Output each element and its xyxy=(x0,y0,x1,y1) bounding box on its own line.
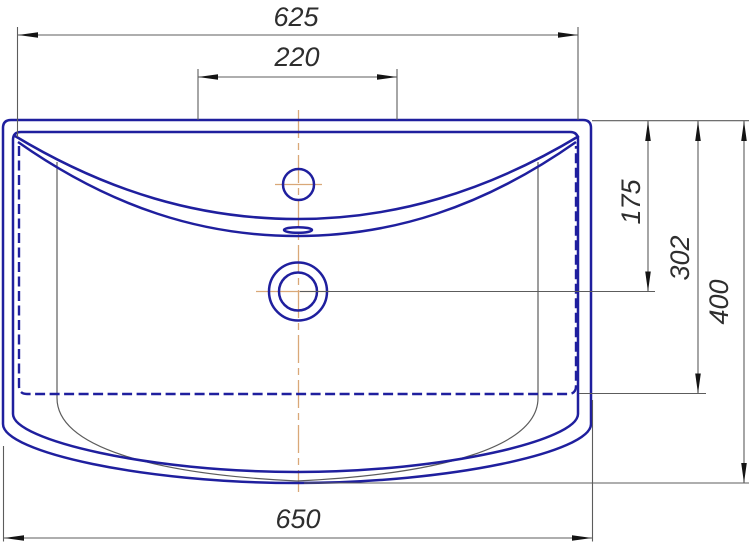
arrow-bottom-width-right xyxy=(572,535,592,541)
technical-drawing-page: 625 220 175 302 400 650 xyxy=(0,0,750,544)
extension-lines xyxy=(4,27,750,542)
inner-rim-outline xyxy=(13,132,578,472)
overflow-slot xyxy=(284,227,312,233)
dimension-arrowheads xyxy=(4,32,747,541)
arrow-right-bottom-down xyxy=(741,463,747,483)
dimension-label-right-bottom: 400 xyxy=(704,279,734,324)
arrow-right-top-up xyxy=(645,121,651,141)
arrow-top-width-right xyxy=(558,32,578,38)
arrow-right-bottom-up xyxy=(741,121,747,141)
dimension-label-top-width: 625 xyxy=(273,2,319,32)
dimension-labels: 625 220 175 302 400 650 xyxy=(273,2,734,534)
arrow-top-width-left xyxy=(18,32,38,38)
arrow-faucet-zone-left xyxy=(198,74,218,80)
basin-back-wall-upper-curve xyxy=(15,136,579,219)
washbasin-top-view-drawing: 625 220 175 302 400 650 xyxy=(0,0,750,544)
dimension-label-right-top: 175 xyxy=(616,178,646,224)
basin-back-wall-lower-curve xyxy=(18,142,576,236)
arrow-right-top-down xyxy=(645,272,651,292)
dimension-label-faucet-zone-width: 220 xyxy=(273,42,319,72)
arrow-right-middle-down xyxy=(695,374,701,394)
arrow-right-middle-up xyxy=(695,121,701,141)
centerlines xyxy=(256,110,330,492)
sink-outline xyxy=(3,120,591,483)
arrow-faucet-zone-right xyxy=(377,74,397,80)
arrow-bottom-width-left xyxy=(4,535,24,541)
dimension-label-bottom-width: 650 xyxy=(275,504,320,534)
dimension-lines xyxy=(4,35,744,538)
hidden-bowl-bottom-edge xyxy=(19,146,576,394)
dimension-label-right-middle: 302 xyxy=(665,235,695,280)
